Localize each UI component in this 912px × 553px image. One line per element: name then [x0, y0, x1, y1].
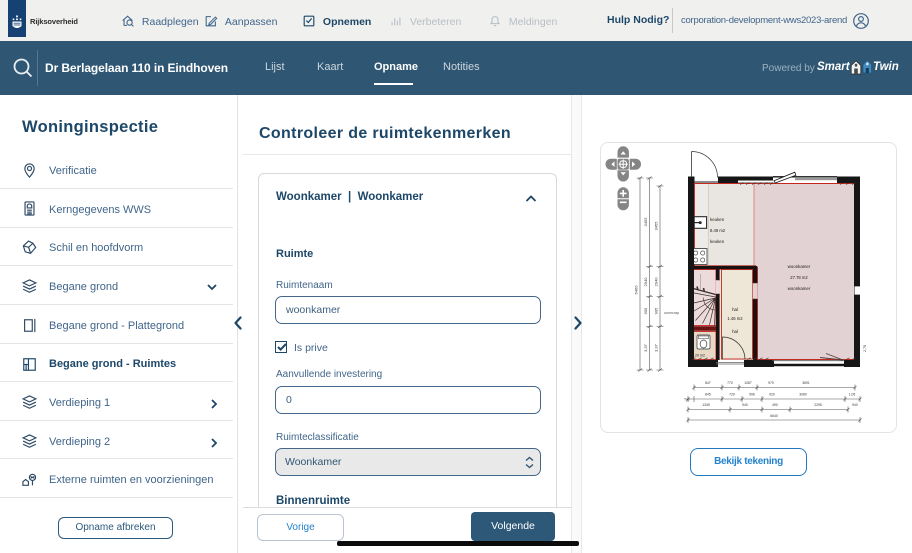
svg-text:keuken: keuken [710, 217, 725, 222]
svg-text:845: 845 [705, 393, 711, 397]
svg-text:847: 847 [705, 381, 711, 385]
svg-text:940: 940 [742, 403, 748, 407]
svg-text:3455: 3455 [643, 217, 648, 227]
svg-text:720: 720 [729, 393, 735, 397]
svg-text:920: 920 [769, 393, 775, 397]
svg-text:keuken: keuken [710, 239, 725, 244]
svg-text:3080: 3080 [799, 393, 807, 397]
svg-text:oonncrap: oonncrap [664, 311, 679, 315]
svg-text:996: 996 [749, 393, 755, 397]
svg-text:1.46 m2: 1.46 m2 [727, 316, 743, 321]
svg-text:8.49 m2: 8.49 m2 [710, 228, 726, 233]
svg-text:woonkamer: woonkamer [788, 286, 811, 291]
svg-text:27.78 m2: 27.78 m2 [790, 275, 808, 280]
svg-text:6460: 6460 [634, 285, 639, 295]
svg-text:905: 905 [643, 307, 648, 314]
svg-text:3455: 3455 [654, 221, 659, 231]
svg-text:1,05: 1,05 [849, 393, 856, 397]
svg-text:2940: 2940 [643, 277, 648, 287]
svg-text:1345: 1345 [702, 403, 710, 407]
svg-text:3,37: 3,37 [654, 343, 659, 352]
svg-text:6640: 6640 [770, 414, 778, 418]
svg-text:490: 490 [772, 403, 778, 407]
svg-text:3,37: 3,37 [643, 343, 648, 352]
svg-text:hal: hal [732, 329, 738, 334]
svg-text:2,78: 2,78 [863, 345, 867, 352]
svg-text:770: 770 [727, 381, 733, 385]
svg-text:1087: 1087 [744, 381, 752, 385]
svg-text:woonkamer: woonkamer [788, 264, 811, 269]
svg-text:940: 940 [852, 403, 858, 407]
svg-text:970: 970 [768, 381, 774, 385]
svg-text:2940: 2940 [654, 277, 659, 287]
svg-text:hal: hal [732, 307, 738, 312]
svg-text:Typ: Typ [684, 398, 690, 402]
svg-text:3691: 3691 [802, 381, 810, 385]
svg-text:905: 905 [654, 307, 659, 314]
svg-text:2295: 2295 [814, 403, 822, 407]
